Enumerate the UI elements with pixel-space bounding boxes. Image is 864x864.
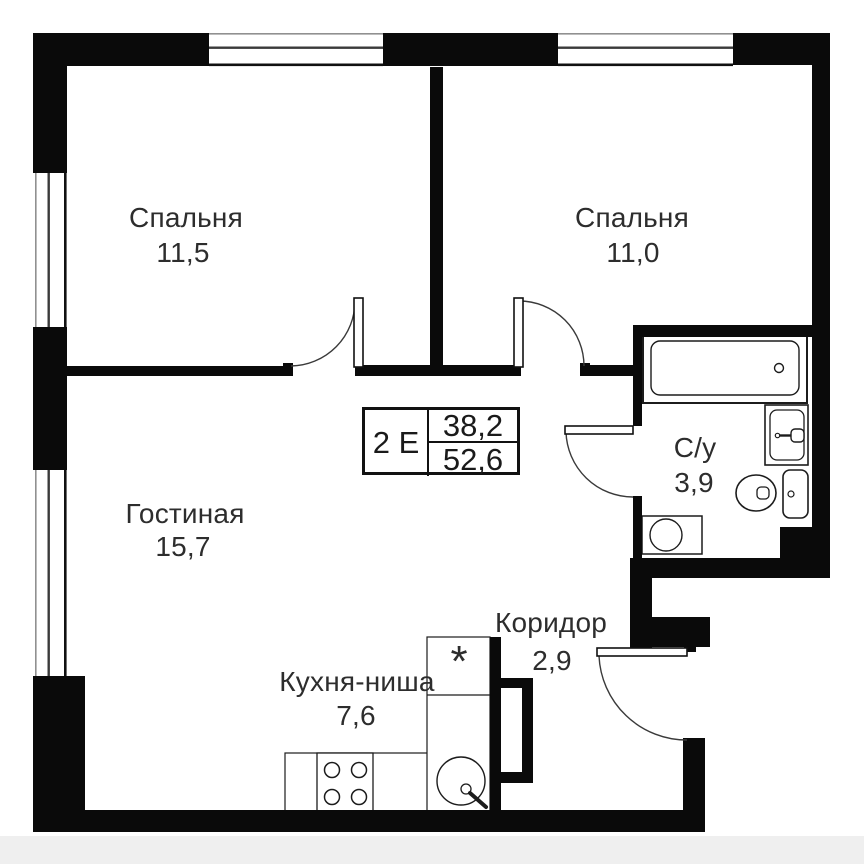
windows <box>35 33 733 676</box>
apartment-areas: 38,2 52,6 <box>429 410 517 476</box>
toilet <box>736 470 808 518</box>
living-area-value: 38,2 <box>429 410 517 443</box>
floor-plan: Спальня 11,5 Спальня 11,0 Гостиная 15,7 … <box>0 0 864 864</box>
room-label-corridor-area: 2,9 <box>532 647 572 675</box>
apartment-info-box: 2 Е 38,2 52,6 <box>362 407 520 475</box>
footer-strip <box>0 836 864 864</box>
room-label-bathroom-name: С/у <box>674 434 717 462</box>
entrance-door <box>597 648 687 740</box>
room-label-bedroom-1-area: 11,5 <box>156 239 209 267</box>
room-label-living-room-name: Гостиная <box>125 500 244 528</box>
bathroom-sink <box>765 405 808 465</box>
room-label-bathroom-area: 3,9 <box>674 469 714 497</box>
room-label-bedroom-2-name: Спальня <box>575 204 689 232</box>
stove <box>317 753 373 811</box>
room-label-corridor-name: Коридор <box>495 609 607 637</box>
kitchen-appliance-marker: * <box>450 640 467 684</box>
room-label-bedroom-1-name: Спальня <box>129 204 243 232</box>
total-area-value: 52,6 <box>429 443 517 476</box>
room-label-kitchen-niche-area: 7,6 <box>336 702 376 730</box>
room-label-bedroom-2-area: 11,0 <box>606 239 659 267</box>
washing-machine <box>642 516 702 554</box>
bathroom-door <box>565 426 633 497</box>
bathtub <box>643 333 807 403</box>
bedroom-2-door <box>514 298 584 367</box>
room-label-kitchen-niche-name: Кухня-ниша <box>279 668 434 696</box>
bedroom-1-door <box>291 298 363 367</box>
apartment-type-label: 2 Е <box>365 410 429 476</box>
room-label-living-room-area: 15,7 <box>155 533 210 561</box>
